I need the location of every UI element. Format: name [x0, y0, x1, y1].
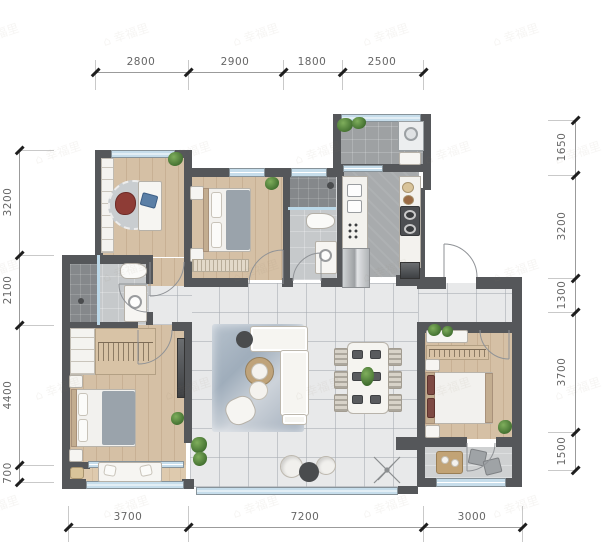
floor-drain [78, 298, 84, 304]
floor-pouf [316, 456, 336, 475]
east-balcony-window [436, 478, 506, 487]
study-window [111, 150, 175, 158]
bedroom2-window [229, 168, 265, 177]
extension-line [20, 150, 54, 151]
extension-line [20, 255, 54, 256]
dining-chair [388, 394, 402, 412]
dim-left-4: 700 [2, 451, 14, 495]
extension-line [20, 482, 54, 483]
watermark: ⌂ 幸福里 [361, 19, 411, 50]
coffee-table-small [249, 381, 268, 400]
burner [404, 224, 416, 234]
wall [512, 277, 522, 484]
wall [184, 322, 192, 443]
wall [282, 278, 293, 287]
bed-runner [485, 373, 493, 423]
washer-door [404, 127, 418, 141]
wall [496, 437, 522, 447]
blanket [226, 190, 250, 250]
dining-chair [388, 371, 402, 389]
hallway-floor [148, 285, 192, 325]
dim-top-3: 1800 [290, 56, 334, 68]
dim-bottom-3: 3000 [450, 511, 494, 523]
floor-lamp [236, 331, 253, 348]
wall [398, 486, 418, 494]
extension-line [283, 60, 284, 90]
master-balcony-window [86, 481, 184, 489]
watermark: ⌂ 幸福里 [0, 19, 21, 50]
extension-line [95, 60, 96, 90]
pillow [78, 419, 88, 442]
wall [283, 177, 290, 278]
shower-glass [97, 255, 100, 325]
column [396, 437, 418, 450]
sofa-top-section [250, 326, 308, 352]
toilet [306, 213, 335, 229]
floor-plan-image: 2800 2900 1800 2500 3200 2100 4400 700 1… [0, 0, 605, 560]
headboard [71, 389, 77, 447]
dining-chair [334, 394, 348, 412]
dim-left-1: 3200 [2, 180, 14, 224]
dim-top-4: 2500 [360, 56, 404, 68]
watermark: ⌂ 幸福里 [491, 19, 541, 50]
wall [146, 312, 153, 325]
wall [504, 478, 522, 487]
sink-basin [128, 295, 142, 309]
dining-chair [334, 371, 348, 389]
dim-right-5: 1500 [556, 429, 568, 473]
dim-top-1: 2800 [119, 56, 163, 68]
bathroom2-shower-floor [288, 176, 336, 209]
kitchen-cabinet [400, 262, 420, 279]
place-setting [370, 395, 381, 404]
pillow [427, 398, 435, 418]
dimension-line-bottom [68, 527, 522, 528]
sofa-ottoman [282, 414, 307, 425]
pillow [211, 222, 222, 248]
headboard [203, 188, 209, 252]
dim-right-4: 3700 [556, 350, 568, 394]
bathroom2-window [291, 168, 327, 177]
shower-head [327, 182, 334, 189]
place-setting [352, 350, 363, 359]
burner [404, 210, 416, 220]
nightstand [425, 359, 440, 371]
utility-sink [399, 152, 421, 165]
watermark: ⌂ 幸福里 [33, 137, 83, 168]
watermark: ⌂ 幸福里 [361, 491, 411, 522]
extension-line [20, 325, 54, 326]
bed-bench [192, 259, 249, 272]
cushion [103, 464, 117, 477]
watermark: ⌂ 幸福里 [0, 491, 21, 522]
kitchen-sink [347, 184, 362, 197]
dining-chair [388, 348, 402, 366]
sofa-right-section [280, 350, 309, 416]
tv-console [177, 338, 185, 398]
control-knobs [347, 222, 359, 240]
shower-glass [288, 207, 336, 210]
wall [146, 263, 153, 284]
extension-line [188, 60, 189, 90]
pillow [78, 393, 88, 416]
place-setting [370, 350, 381, 359]
sink-basin [319, 249, 332, 262]
side-table [70, 467, 84, 479]
dim-right-3: 1300 [556, 273, 568, 317]
dimension-line-top [95, 72, 423, 73]
kitchen-balcony-door-glass [343, 165, 383, 172]
watermark: ⌂ 幸福里 [231, 491, 281, 522]
watermark: ⌂ 幸福里 [231, 19, 281, 50]
entry-door-arc [444, 244, 477, 277]
living-room-floor-east [418, 283, 512, 323]
place-setting [352, 395, 363, 404]
kitchenware [403, 195, 414, 205]
extension-line [423, 60, 424, 90]
coffee-table-tray [251, 363, 268, 380]
master-wardrobe [95, 328, 156, 375]
wall [62, 479, 86, 489]
teacup [441, 456, 449, 464]
dining-chair [334, 348, 348, 366]
dim-right-1: 1650 [556, 125, 568, 169]
watermark: ⌂ 幸福里 [491, 491, 541, 522]
dim-bottom-1: 3700 [106, 511, 150, 523]
low-table [299, 462, 319, 482]
master-shower-floor [70, 255, 98, 325]
refrigerator [342, 248, 370, 288]
dim-right-2: 3200 [556, 204, 568, 248]
wall [423, 114, 431, 190]
toilet [120, 263, 147, 279]
hanger-rail [98, 342, 153, 361]
dim-left-3: 4400 [2, 373, 14, 417]
blanket [102, 391, 135, 445]
dim-bottom-2: 7200 [283, 511, 327, 523]
living-room-window [196, 487, 398, 495]
wall [184, 278, 248, 287]
kitchen-sink [347, 200, 362, 213]
nightstand [69, 375, 83, 388]
dim-left-2: 2100 [2, 268, 14, 312]
dimension-line-left [19, 150, 20, 482]
bedroom3-wardrobe [426, 345, 489, 360]
wall [417, 437, 467, 447]
teacup [451, 459, 459, 467]
pillow [211, 192, 222, 218]
nightstand [69, 449, 83, 462]
dim-top-2: 2900 [213, 56, 257, 68]
watermark: ⌂ 幸福里 [101, 19, 151, 50]
pillow [427, 375, 435, 395]
extension-line [20, 465, 54, 466]
nightstand [425, 425, 440, 438]
extension-line [342, 60, 343, 90]
bedroom3-bed [425, 372, 493, 424]
wall [417, 322, 425, 484]
kitchenware [402, 182, 414, 193]
dimension-tick [571, 465, 581, 475]
wardrobe-shelves [70, 328, 95, 375]
nightstand [190, 186, 204, 200]
study-chair [115, 192, 136, 215]
hanger-rail [429, 349, 486, 357]
